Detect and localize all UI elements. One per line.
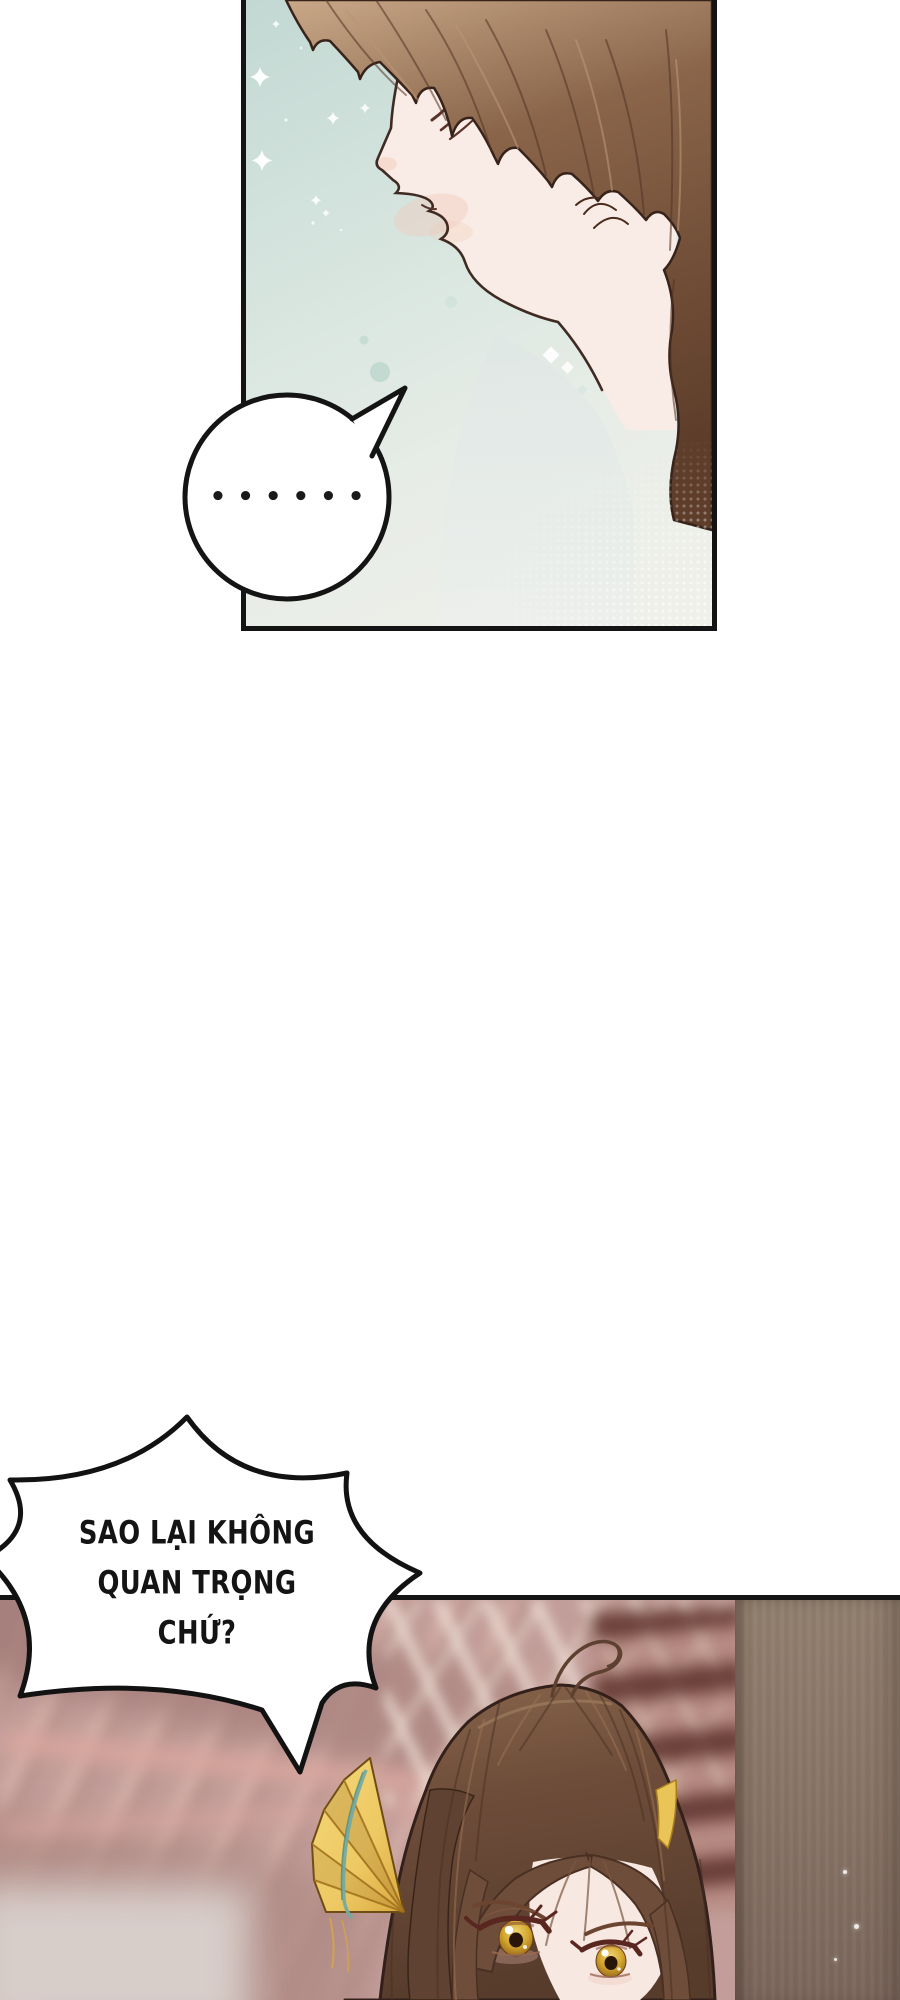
shout-text: SAO LẠI KHÔNG QUAN TRỌNG CHỨ?	[42, 1509, 352, 1659]
shout-line: QUAN TRỌNG	[64, 1557, 331, 1611]
halftone-texture	[472, 441, 712, 626]
ellipsis-text: ••••••	[187, 480, 387, 514]
shout-line: CHỨ?	[64, 1607, 331, 1661]
shout-line: SAO LẠI KHÔNG	[64, 1507, 331, 1561]
comic-page: ••••••	[0, 0, 900, 2000]
